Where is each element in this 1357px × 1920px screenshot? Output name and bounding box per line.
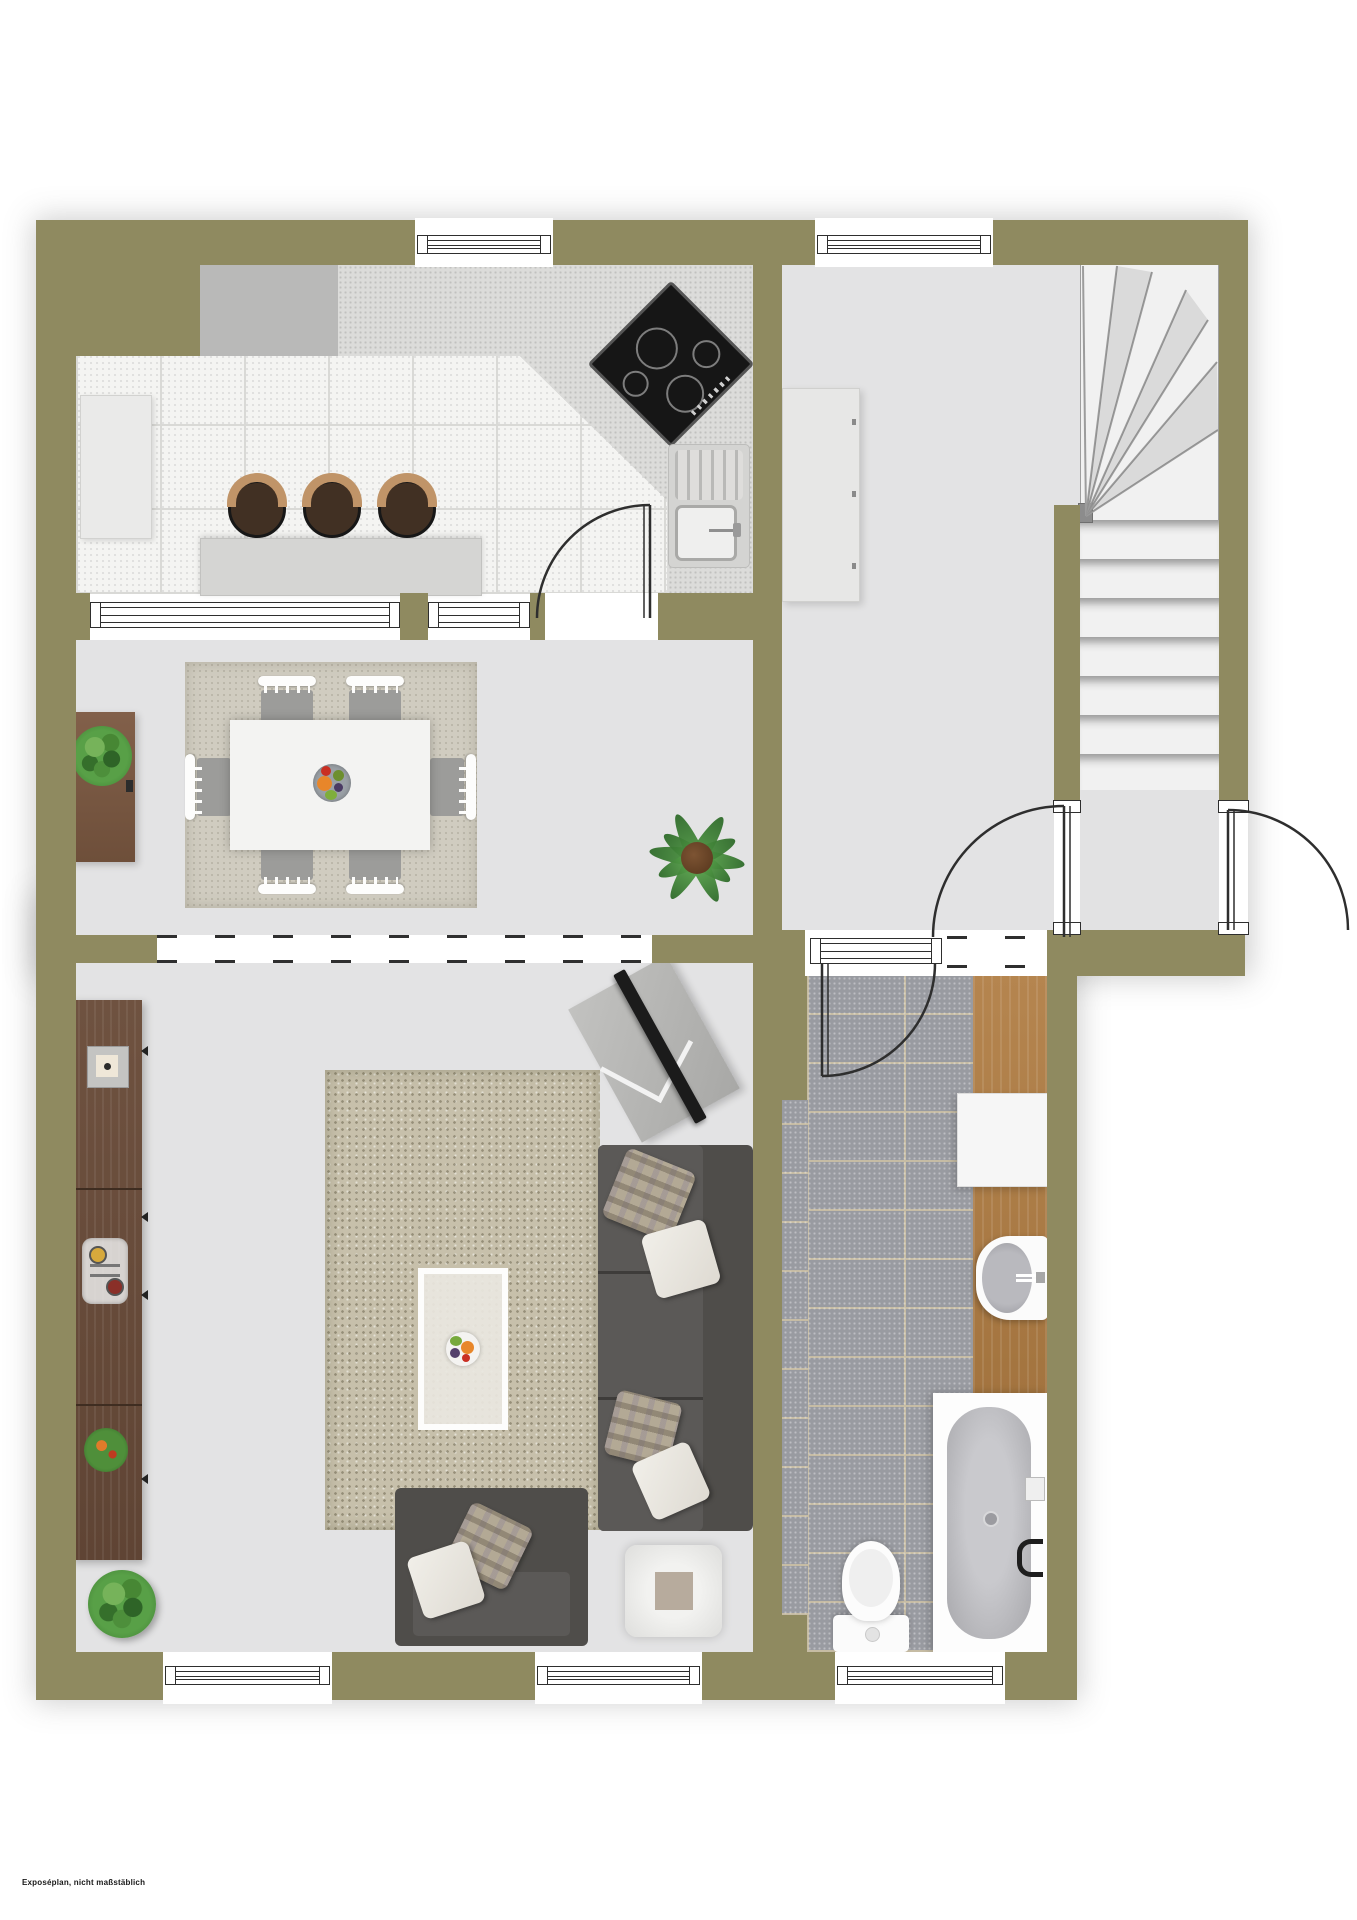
wall-top [993,220,1248,265]
wall-top [553,220,815,265]
stair-tread [1080,754,1219,790]
shelf-picture-frame [87,1046,129,1088]
kitchen-window [417,235,551,254]
shelf-tray-glasses [82,1238,128,1304]
living-window1 [165,1666,330,1685]
wall-bottom [36,1652,163,1700]
bar-stool [378,480,436,538]
stair-tread [1080,520,1219,559]
hall-floor [782,264,1080,944]
hall-wardrobe [782,388,860,602]
coffee-table-fruit-bowl [446,1332,480,1366]
tub-grab-rail [1017,1539,1043,1577]
wall-kitchen-dining [400,593,428,640]
burner-large [627,319,686,378]
wall-spine-upper [753,264,782,944]
wall-bottom [1005,1652,1077,1700]
toilet-bowl [842,1541,900,1621]
sink-drainboard [675,450,743,500]
wall-right-stairwell [1219,264,1248,810]
wall-left [36,264,76,1700]
bath-wall-dashed-opening [947,936,1047,968]
sink-faucet-handle [733,523,741,537]
stair-tread [1080,598,1219,637]
wall-bottom [702,1652,835,1700]
stair-tread [1080,715,1219,754]
stair-newel [1078,503,1093,523]
wall-top [36,220,415,265]
bar-stool [303,480,361,538]
stair-landing-floor [1080,770,1219,944]
wall-spine-lower [753,963,782,1652]
wall-bottom [332,1652,535,1700]
bath-floor-step [778,1100,808,1615]
wall-kitchen-dining [530,593,545,640]
stair-tread [1080,637,1219,676]
door-jamb [1218,922,1249,935]
washbasin [976,1236,1048,1320]
kitchen-sink-unit [668,444,750,568]
hall-landing-door-gap [1054,806,1080,934]
wall-living-dining [66,935,157,963]
dining-chair-right [428,754,476,820]
floor-plan-canvas: Exposéplan, nicht maßstäblich [0,0,1357,1920]
burner-small2 [617,365,654,402]
tub-faucet [1025,1477,1045,1501]
living-window2 [537,1666,700,1685]
wall-bath-step-upper [782,976,807,1100]
sink-faucet [709,529,735,532]
kitchen-cabinet-left [80,395,152,539]
palm-pot [681,842,713,874]
stair-tread [1080,559,1219,598]
washing-machine [957,1093,1049,1187]
living-shelf-unit [70,1000,142,1560]
interior-window-kitchen-dining-2 [428,602,530,628]
bath-transom-window [810,938,942,964]
kitchen-door-gap [545,593,658,640]
wall-kitchen-dining [658,593,753,640]
stair-tread [1080,676,1219,715]
door-jamb [1053,800,1081,813]
bathtub [933,1393,1047,1653]
wardrobe-handles [852,419,856,569]
entrance-door-gap [1219,806,1248,934]
wall-stairwell-left [1054,505,1080,810]
shelf-plant [84,1428,128,1472]
burner-small [687,334,727,374]
open-passage-living-dining [157,935,652,963]
wall-bath-step-lower [782,1615,807,1652]
dining-chair-left [185,754,233,820]
door-jamb [1218,800,1249,813]
sideboard-plant [72,726,132,786]
bar-stool [228,480,286,538]
plan-footnote: Exposéplan, nicht maßstäblich [22,1878,145,1887]
bath-window [837,1666,1003,1685]
wall-bath-right [1047,944,1077,1700]
wall-kitchen-dining [66,593,90,640]
side-table [625,1545,722,1637]
palm-plant [647,808,747,908]
kitchen-island [200,538,482,596]
living-round-plant [88,1570,156,1638]
sink-basin [675,505,737,561]
sideboard-handle [126,780,133,792]
burner-large2 [658,367,712,421]
fruit-bowl [313,764,351,802]
interior-window-kitchen-dining [90,602,400,628]
coffee-table [418,1268,508,1430]
hall-window [817,235,991,254]
tub-drain [983,1511,999,1527]
door-jamb [1053,922,1081,935]
